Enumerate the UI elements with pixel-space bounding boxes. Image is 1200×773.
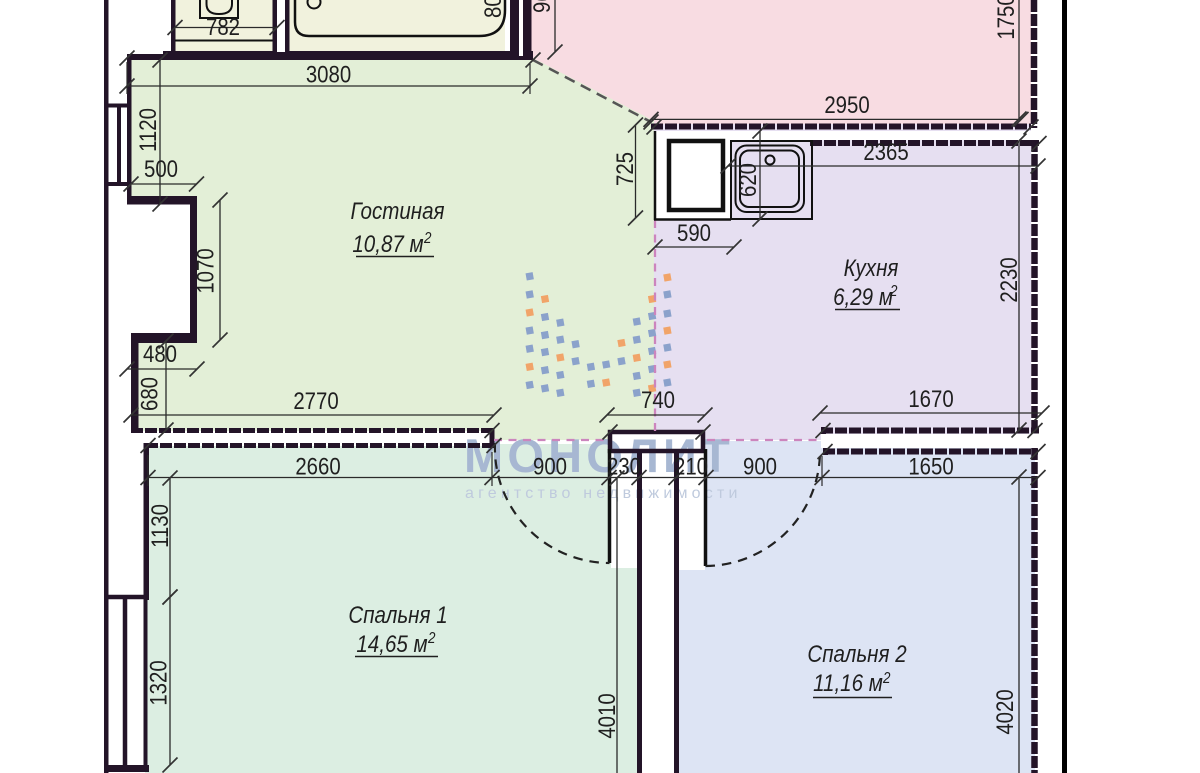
svg-text:2: 2 xyxy=(427,630,435,647)
svg-text:2: 2 xyxy=(882,670,890,687)
svg-text:1650: 1650 xyxy=(908,453,953,480)
svg-text:680: 680 xyxy=(136,377,163,411)
svg-text:1320: 1320 xyxy=(145,660,172,705)
svg-text:1750: 1750 xyxy=(992,0,1019,40)
svg-text:11,16 м: 11,16 м xyxy=(813,669,883,696)
svg-text:590: 590 xyxy=(677,219,711,246)
svg-text:900: 900 xyxy=(743,453,777,480)
svg-text:2770: 2770 xyxy=(293,387,338,414)
svg-text:782: 782 xyxy=(206,13,240,40)
svg-text:Спальня 1: Спальня 1 xyxy=(348,601,447,628)
svg-text:2660: 2660 xyxy=(295,453,340,480)
svg-text:960: 960 xyxy=(528,0,555,13)
svg-text:2: 2 xyxy=(889,283,897,300)
svg-text:210: 210 xyxy=(674,453,708,480)
svg-text:2950: 2950 xyxy=(824,91,869,118)
svg-text:800: 800 xyxy=(479,0,506,18)
svg-text:Кухня: Кухня xyxy=(844,254,899,281)
svg-text:1130: 1130 xyxy=(146,504,173,548)
svg-text:1670: 1670 xyxy=(908,385,953,412)
svg-text:900: 900 xyxy=(533,453,567,480)
svg-text:14,65 м: 14,65 м xyxy=(356,630,428,657)
svg-text:1070: 1070 xyxy=(192,248,219,293)
svg-text:Гостиная: Гостиная xyxy=(350,197,444,224)
svg-text:4010: 4010 xyxy=(593,693,620,738)
svg-text:1120: 1120 xyxy=(134,108,161,152)
svg-text:2: 2 xyxy=(423,230,431,247)
svg-text:2230: 2230 xyxy=(995,257,1022,302)
svg-text:Спальня 2: Спальня 2 xyxy=(807,640,907,667)
svg-text:480: 480 xyxy=(143,340,177,367)
svg-text:500: 500 xyxy=(144,155,178,182)
svg-text:10,87 м: 10,87 м xyxy=(352,230,424,257)
svg-text:3080: 3080 xyxy=(306,61,351,88)
svg-text:6,29 м: 6,29 м xyxy=(833,283,893,310)
svg-text:620: 620 xyxy=(734,163,761,197)
svg-text:2365: 2365 xyxy=(863,138,908,165)
svg-text:230: 230 xyxy=(607,453,641,480)
svg-text:725: 725 xyxy=(611,152,638,186)
svg-text:740: 740 xyxy=(641,386,675,413)
svg-text:4020: 4020 xyxy=(991,689,1018,734)
